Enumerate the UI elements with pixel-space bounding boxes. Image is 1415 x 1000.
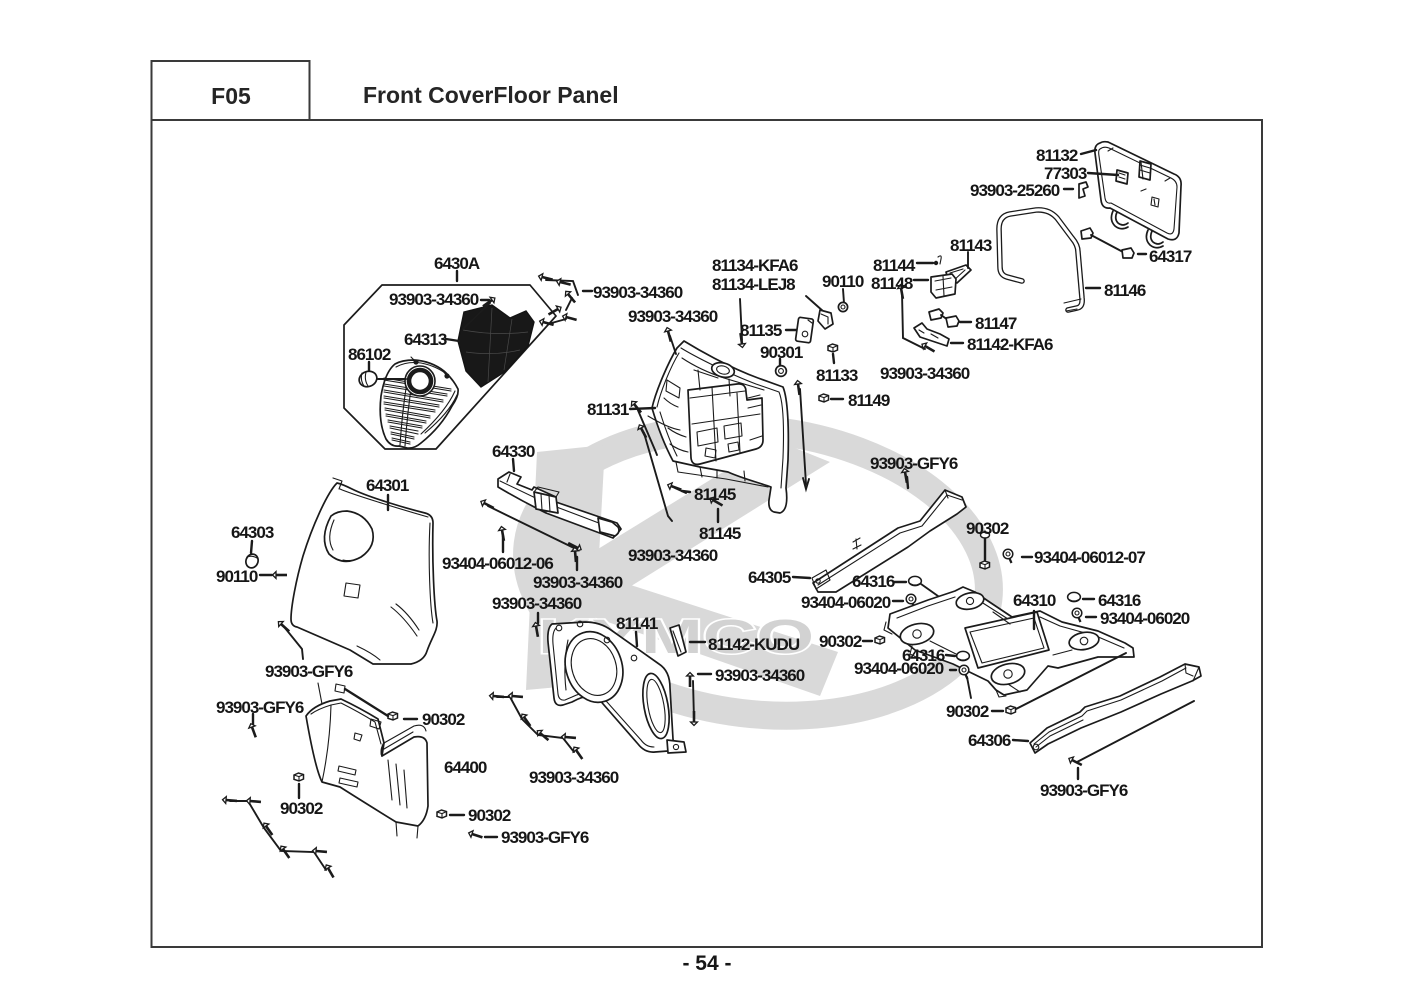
svg-text:93903-34360: 93903-34360 bbox=[628, 546, 718, 565]
svg-text:6430A: 6430A bbox=[434, 254, 480, 273]
svg-text:81141: 81141 bbox=[616, 614, 658, 633]
svg-text:81147: 81147 bbox=[975, 314, 1017, 333]
svg-text:93903-GFY6: 93903-GFY6 bbox=[1040, 781, 1128, 800]
svg-text:64303: 64303 bbox=[231, 523, 274, 542]
svg-text:90301: 90301 bbox=[760, 343, 803, 362]
svg-text:64301: 64301 bbox=[366, 476, 409, 495]
svg-text:90110: 90110 bbox=[216, 567, 258, 586]
svg-text:93404-06020: 93404-06020 bbox=[854, 659, 944, 678]
svg-text:64317: 64317 bbox=[1149, 247, 1192, 266]
svg-text:86102: 86102 bbox=[348, 345, 391, 364]
svg-text:81149: 81149 bbox=[848, 391, 890, 410]
svg-text:81148: 81148 bbox=[871, 274, 913, 293]
svg-text:Front CoverFloor Panel: Front CoverFloor Panel bbox=[363, 82, 619, 108]
svg-text:93903-GFY6: 93903-GFY6 bbox=[501, 828, 589, 847]
svg-text:90302: 90302 bbox=[946, 702, 989, 721]
svg-text:64310: 64310 bbox=[1013, 591, 1056, 610]
svg-text:81145: 81145 bbox=[699, 524, 741, 543]
svg-text:93903-GFY6: 93903-GFY6 bbox=[216, 698, 304, 717]
svg-text:81134-KFA6: 81134-KFA6 bbox=[712, 256, 798, 275]
svg-text:F05: F05 bbox=[211, 83, 251, 109]
svg-text:93404-06012-06: 93404-06012-06 bbox=[442, 554, 553, 573]
svg-text:81132: 81132 bbox=[1036, 146, 1078, 165]
svg-text:90110: 90110 bbox=[822, 272, 864, 291]
svg-text:64330: 64330 bbox=[492, 442, 535, 461]
svg-text:81145: 81145 bbox=[694, 485, 736, 504]
svg-text:81131: 81131 bbox=[587, 400, 629, 419]
svg-text:93903-34360: 93903-34360 bbox=[492, 594, 582, 613]
svg-text:81142-KUDU: 81142-KUDU bbox=[708, 635, 800, 654]
svg-text:64316: 64316 bbox=[1098, 591, 1141, 610]
svg-text:- 54 -: - 54 - bbox=[682, 952, 731, 975]
svg-text:81133: 81133 bbox=[816, 366, 858, 385]
svg-text:81142-KFA6: 81142-KFA6 bbox=[967, 335, 1053, 354]
svg-text:93404-06020: 93404-06020 bbox=[801, 593, 891, 612]
svg-text:93903-34360: 93903-34360 bbox=[628, 307, 718, 326]
svg-text:93903-GFY6: 93903-GFY6 bbox=[265, 662, 353, 681]
svg-text:90302: 90302 bbox=[966, 519, 1009, 538]
svg-text:81144: 81144 bbox=[873, 256, 916, 275]
svg-text:81135: 81135 bbox=[740, 321, 782, 340]
svg-text:64400: 64400 bbox=[444, 758, 487, 777]
svg-text:90302: 90302 bbox=[468, 806, 511, 825]
svg-text:93404-06020: 93404-06020 bbox=[1100, 609, 1190, 628]
svg-text:64306: 64306 bbox=[968, 731, 1011, 750]
svg-text:90302: 90302 bbox=[422, 710, 465, 729]
svg-text:93903-34360: 93903-34360 bbox=[389, 290, 479, 309]
svg-text:93903-34360: 93903-34360 bbox=[533, 573, 623, 592]
svg-text:93903-34360: 93903-34360 bbox=[880, 364, 970, 383]
svg-text:93404-06012-07: 93404-06012-07 bbox=[1034, 548, 1145, 567]
svg-text:90302: 90302 bbox=[280, 799, 323, 818]
svg-text:81143: 81143 bbox=[950, 236, 992, 255]
svg-text:93903-GFY6: 93903-GFY6 bbox=[870, 454, 958, 473]
svg-text:81134-LEJ8: 81134-LEJ8 bbox=[712, 275, 795, 294]
svg-text:93903-34360: 93903-34360 bbox=[715, 666, 805, 685]
svg-text:93903-34360: 93903-34360 bbox=[529, 768, 619, 787]
svg-text:93903-34360: 93903-34360 bbox=[593, 283, 683, 302]
svg-text:64313: 64313 bbox=[404, 330, 447, 349]
svg-text:93903-25260: 93903-25260 bbox=[970, 181, 1060, 200]
svg-text:81146: 81146 bbox=[1104, 281, 1146, 300]
svg-text:64316: 64316 bbox=[852, 572, 895, 591]
svg-text:64305: 64305 bbox=[748, 568, 791, 587]
svg-text:90302: 90302 bbox=[819, 632, 862, 651]
